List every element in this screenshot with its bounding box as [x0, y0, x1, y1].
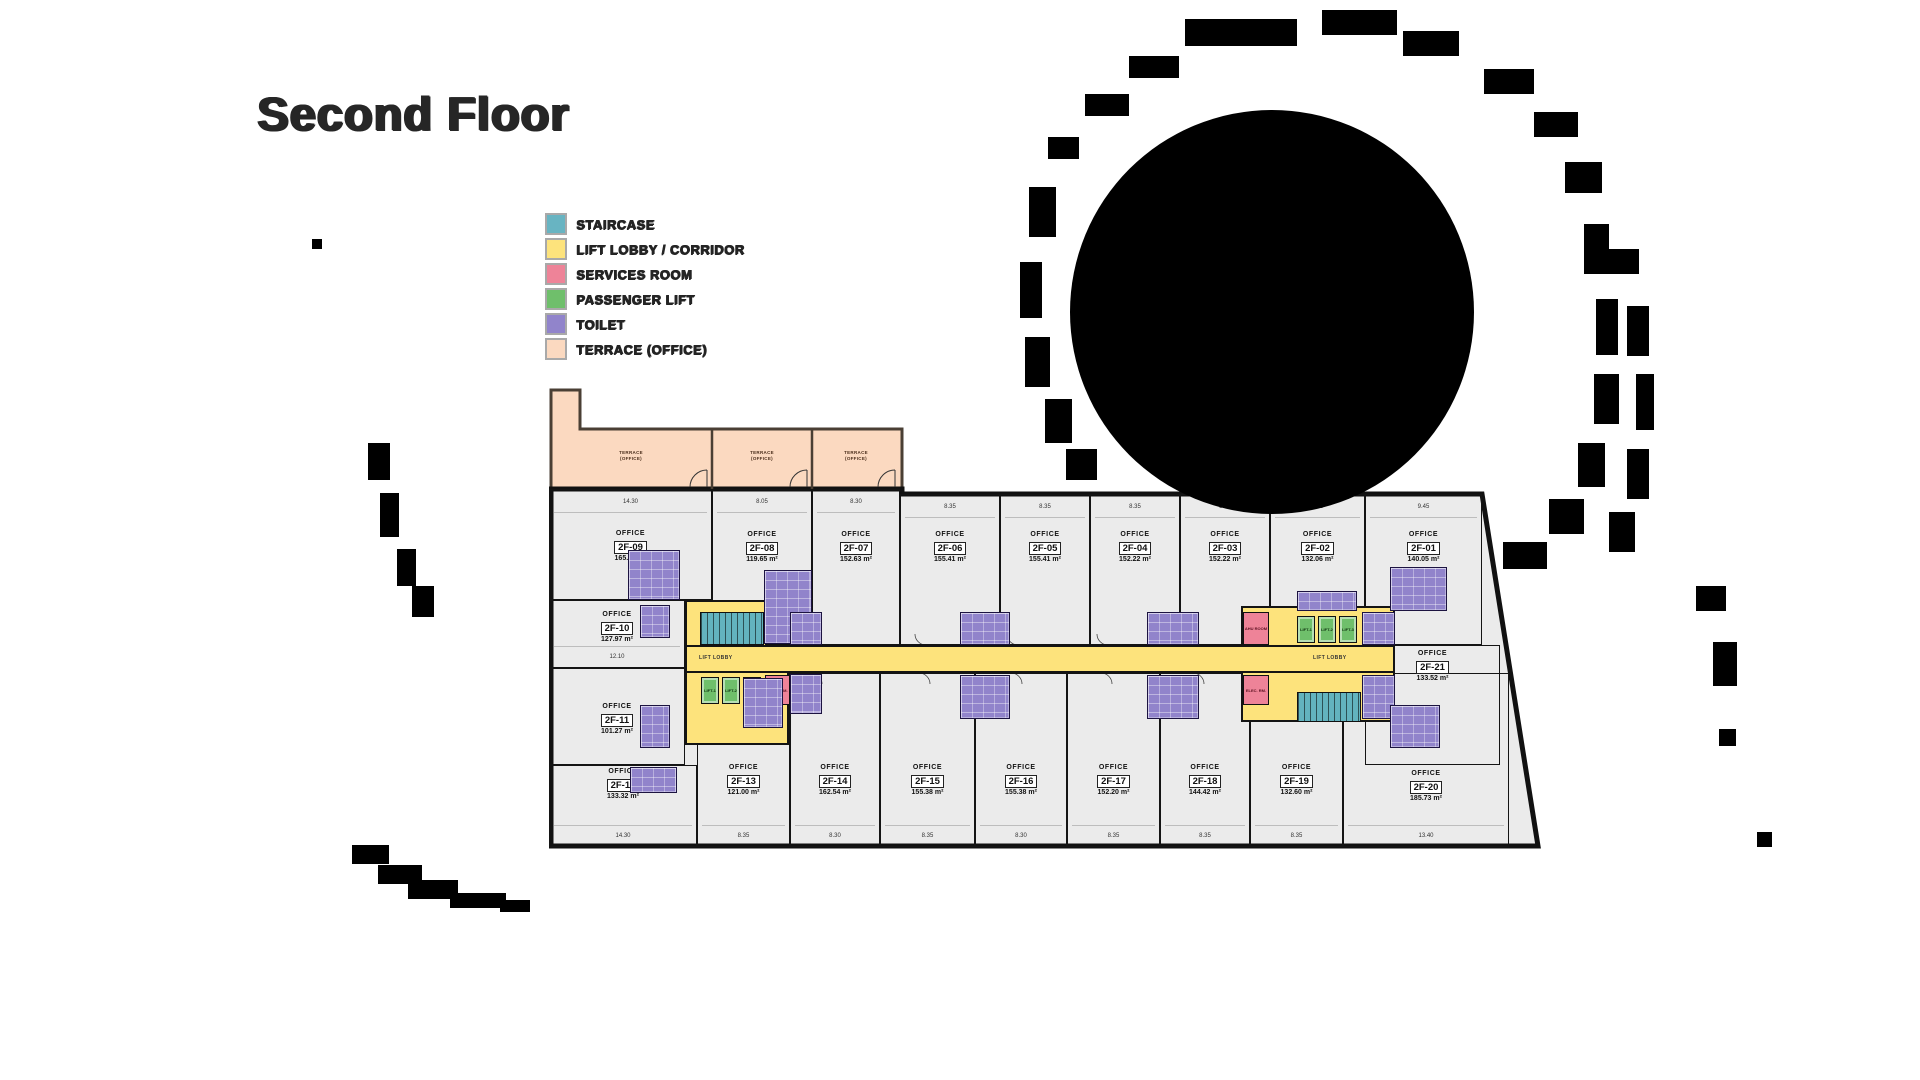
page-title: Second Floor — [257, 86, 569, 141]
legend-item: TOILET — [545, 313, 744, 335]
unit-2f-05: 8.35 OFFICE2F-05155.41 m² — [1000, 494, 1090, 645]
dither-artifact — [1129, 56, 1179, 78]
toilet-block — [790, 674, 822, 714]
dither-artifact — [1066, 449, 1097, 480]
toilet-block — [743, 678, 783, 728]
dither-artifact — [1549, 499, 1584, 534]
dither-artifact — [1020, 262, 1042, 318]
toilet-block — [960, 612, 1010, 645]
corridor — [685, 645, 1395, 673]
legend-label: STAIRCASE — [576, 217, 655, 232]
toilet-block — [1390, 567, 1447, 611]
dither-artifact — [1594, 374, 1619, 424]
toilet-block — [1362, 612, 1395, 645]
legend-label: SERVICES ROOM — [576, 267, 692, 282]
terrace-label: TERRACE(OFFICE) — [619, 450, 643, 461]
legend-label: PASSENGER LIFT — [576, 292, 695, 307]
black-circle-artifact — [1070, 110, 1474, 514]
toilet-block — [630, 767, 677, 793]
dither-artifact — [1322, 10, 1397, 35]
terrace-label: TERRACE(OFFICE) — [750, 450, 774, 461]
dither-artifact — [1757, 832, 1772, 847]
legend-label: TOILET — [576, 317, 625, 332]
legend-label: LIFT LOBBY / CORRIDOR — [576, 242, 744, 257]
lift-1: LIFT-1 — [1297, 616, 1315, 643]
services-swatch-icon — [545, 263, 567, 285]
dither-artifact — [1578, 443, 1605, 487]
dither-artifact — [1627, 449, 1649, 499]
legend-item: TERRACE (OFFICE) — [545, 338, 744, 360]
stair-right — [1297, 692, 1361, 722]
dither-artifact — [1534, 112, 1578, 137]
toilet-block — [790, 612, 822, 645]
dither-artifact — [450, 893, 506, 908]
dither-artifact — [397, 549, 416, 586]
dither-artifact — [1029, 187, 1056, 237]
toilet-swatch-icon — [545, 313, 567, 335]
elec-room: ELEC. RM. — [1243, 675, 1269, 705]
dither-artifact — [1596, 299, 1618, 355]
toilet-block — [1297, 591, 1357, 611]
dither-artifact — [1636, 374, 1654, 430]
stair-left — [700, 612, 764, 645]
stair-swatch-icon — [545, 213, 567, 235]
dither-artifact — [1719, 729, 1736, 746]
toilet-block — [960, 675, 1010, 719]
dither-artifact — [412, 586, 434, 617]
lobby-swatch-icon — [545, 238, 567, 260]
dither-artifact — [1048, 137, 1079, 159]
legend-item: LIFT LOBBY / CORRIDOR — [545, 238, 744, 260]
legend-item: SERVICES ROOM — [545, 263, 744, 285]
lift-lobby-label: LIFT LOBBY — [699, 655, 732, 661]
dither-artifact — [1025, 337, 1050, 387]
dither-artifact — [1713, 642, 1737, 686]
lift-2: LIFT-2 — [722, 677, 740, 704]
dither-artifact — [1085, 94, 1129, 116]
legend: STAIRCASE LIFT LOBBY / CORRIDOR SERVICES… — [545, 213, 744, 363]
terrace-label: TERRACE(OFFICE) — [844, 450, 868, 461]
dither-artifact — [1696, 586, 1726, 611]
dither-artifact — [312, 239, 322, 249]
lift-2: LIFT-2 — [1318, 616, 1336, 643]
dither-artifact — [500, 900, 530, 912]
dither-artifact — [380, 493, 399, 537]
dither-artifact — [1045, 399, 1072, 443]
legend-label: TERRACE (OFFICE) — [576, 342, 707, 357]
terrace-swatch-icon — [545, 338, 567, 360]
toilet-block — [640, 605, 670, 638]
ahu-room: AHU ROOM — [1243, 612, 1269, 645]
legend-item: STAIRCASE — [545, 213, 744, 235]
toilet-block — [1147, 612, 1199, 645]
floor-plan-sheet: Second Floor STAIRCASE LIFT LOBBY / CORR… — [0, 0, 1920, 1080]
dither-artifact — [1609, 512, 1635, 552]
toilet-block — [1390, 705, 1440, 748]
toilet-block — [628, 550, 680, 600]
lift-1: LIFT-1 — [701, 677, 719, 704]
dither-artifact — [1609, 249, 1639, 274]
dither-artifact — [1403, 31, 1459, 56]
lift-lobby-label: LIFT LOBBY — [1313, 655, 1346, 661]
dither-artifact — [1484, 69, 1534, 94]
legend-item: PASSENGER LIFT — [545, 288, 744, 310]
dither-artifact — [1584, 224, 1609, 274]
lift-swatch-icon — [545, 288, 567, 310]
dither-artifact — [368, 443, 390, 480]
dither-artifact — [1503, 542, 1547, 569]
dither-artifact — [352, 845, 389, 864]
dither-artifact — [1185, 19, 1297, 46]
dither-artifact — [1627, 306, 1649, 356]
unit-2f-07: 8.30 OFFICE2F-07152.63 m² — [812, 489, 900, 645]
lift-3: LIFT-3 — [1339, 616, 1357, 643]
toilet-block — [640, 705, 670, 748]
dither-artifact — [1565, 162, 1602, 193]
toilet-block — [1147, 675, 1199, 719]
